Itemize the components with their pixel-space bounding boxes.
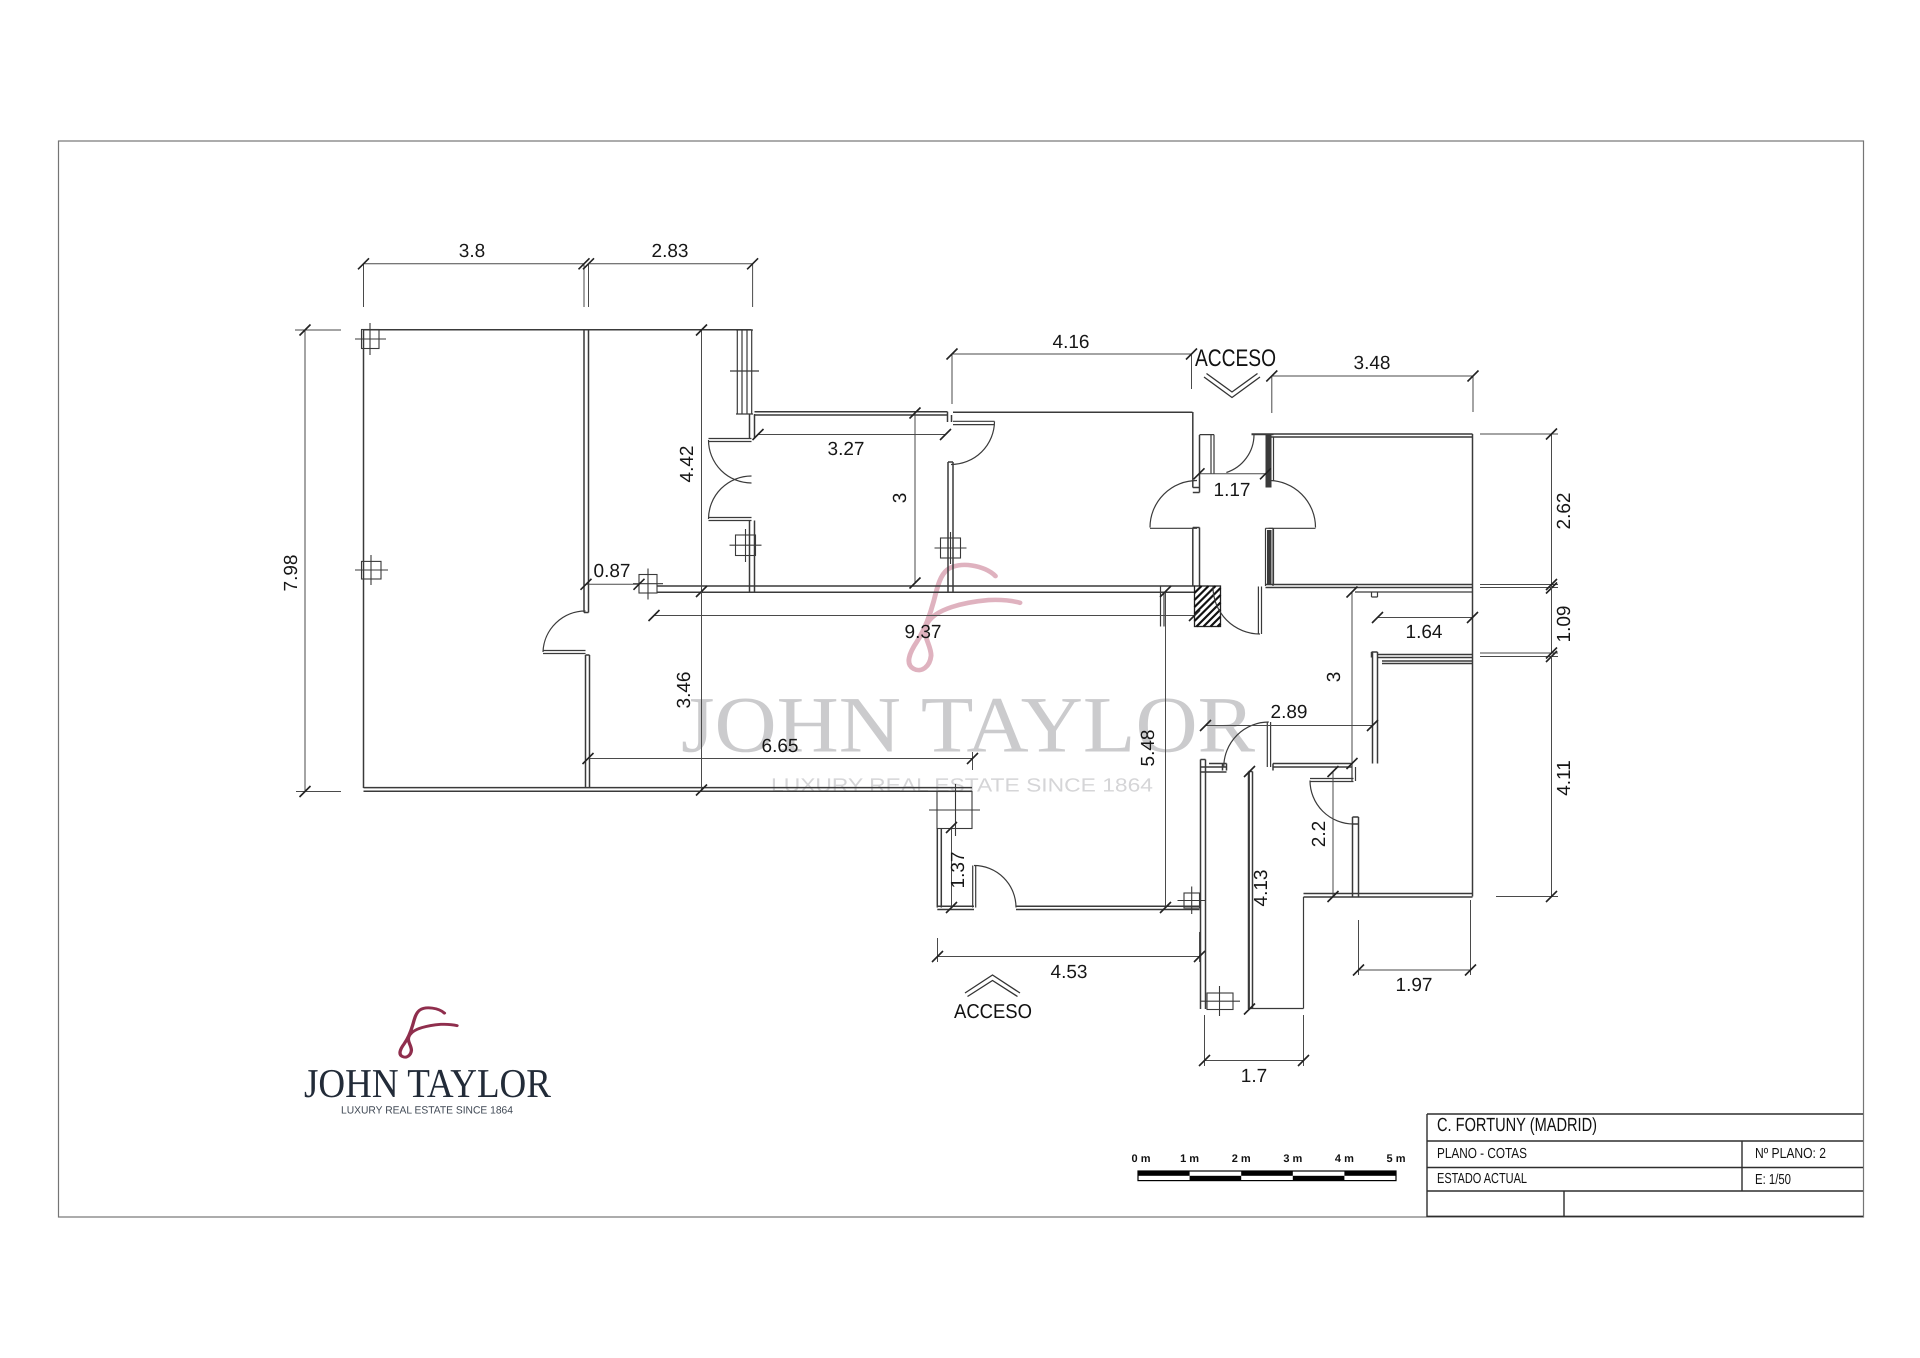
svg-text:4.13: 4.13 bbox=[1251, 870, 1272, 907]
svg-text:2.83: 2.83 bbox=[652, 241, 689, 262]
svg-text:ACCESO: ACCESO bbox=[954, 1001, 1032, 1023]
svg-text:6.65: 6.65 bbox=[762, 736, 799, 757]
svg-text:3: 3 bbox=[890, 493, 911, 504]
svg-text:LUXURY REAL ESTATE SINCE 1864: LUXURY REAL ESTATE SINCE 1864 bbox=[341, 1105, 513, 1117]
svg-text:ACCESO: ACCESO bbox=[1195, 345, 1276, 372]
svg-text:2.62: 2.62 bbox=[1554, 493, 1575, 530]
svg-text:ESTADO ACTUAL: ESTADO ACTUAL bbox=[1437, 1171, 1527, 1187]
svg-text:2.2: 2.2 bbox=[1309, 821, 1330, 847]
svg-text:3 m: 3 m bbox=[1283, 1153, 1302, 1165]
svg-text:4.16: 4.16 bbox=[1053, 332, 1090, 353]
svg-text:9.37: 9.37 bbox=[905, 622, 942, 643]
svg-text:1.64: 1.64 bbox=[1406, 622, 1443, 643]
svg-text:E: 1/50: E: 1/50 bbox=[1755, 1172, 1791, 1188]
svg-text:3.46: 3.46 bbox=[674, 672, 695, 709]
svg-text:5.48: 5.48 bbox=[1138, 730, 1159, 767]
svg-text:1.37: 1.37 bbox=[948, 852, 969, 889]
svg-text:0.87: 0.87 bbox=[594, 561, 631, 582]
svg-text:1 m: 1 m bbox=[1180, 1153, 1199, 1165]
svg-text:C. FORTUNY (MADRID): C. FORTUNY (MADRID) bbox=[1437, 1115, 1597, 1136]
svg-text:JOHN TAYLOR: JOHN TAYLOR bbox=[304, 1060, 552, 1106]
svg-text:4.11: 4.11 bbox=[1554, 760, 1575, 796]
svg-text:3.8: 3.8 bbox=[459, 241, 485, 262]
svg-text:5 m: 5 m bbox=[1387, 1153, 1406, 1165]
svg-text:0 m: 0 m bbox=[1132, 1153, 1151, 1165]
svg-text:1.17: 1.17 bbox=[1214, 480, 1251, 501]
svg-text:LUXURY REAL ESTATE SINCE 1864: LUXURY REAL ESTATE SINCE 1864 bbox=[771, 776, 1154, 797]
svg-text:3.27: 3.27 bbox=[828, 439, 865, 460]
svg-text:2.89: 2.89 bbox=[1271, 702, 1308, 723]
svg-text:4.42: 4.42 bbox=[677, 446, 698, 483]
svg-text:2 m: 2 m bbox=[1232, 1153, 1251, 1165]
svg-text:4 m: 4 m bbox=[1335, 1153, 1354, 1165]
svg-text:3.48: 3.48 bbox=[1354, 353, 1391, 374]
svg-text:PLANO - COTAS: PLANO - COTAS bbox=[1437, 1146, 1527, 1162]
svg-text:1.7: 1.7 bbox=[1241, 1066, 1267, 1087]
svg-text:4.53: 4.53 bbox=[1051, 962, 1088, 983]
svg-text:3: 3 bbox=[1324, 672, 1345, 683]
svg-text:1.09: 1.09 bbox=[1554, 606, 1575, 643]
svg-text:1.97: 1.97 bbox=[1396, 975, 1433, 996]
svg-text:Nº PLANO: 2: Nº PLANO: 2 bbox=[1755, 1146, 1826, 1162]
svg-text:7.98: 7.98 bbox=[281, 555, 302, 592]
